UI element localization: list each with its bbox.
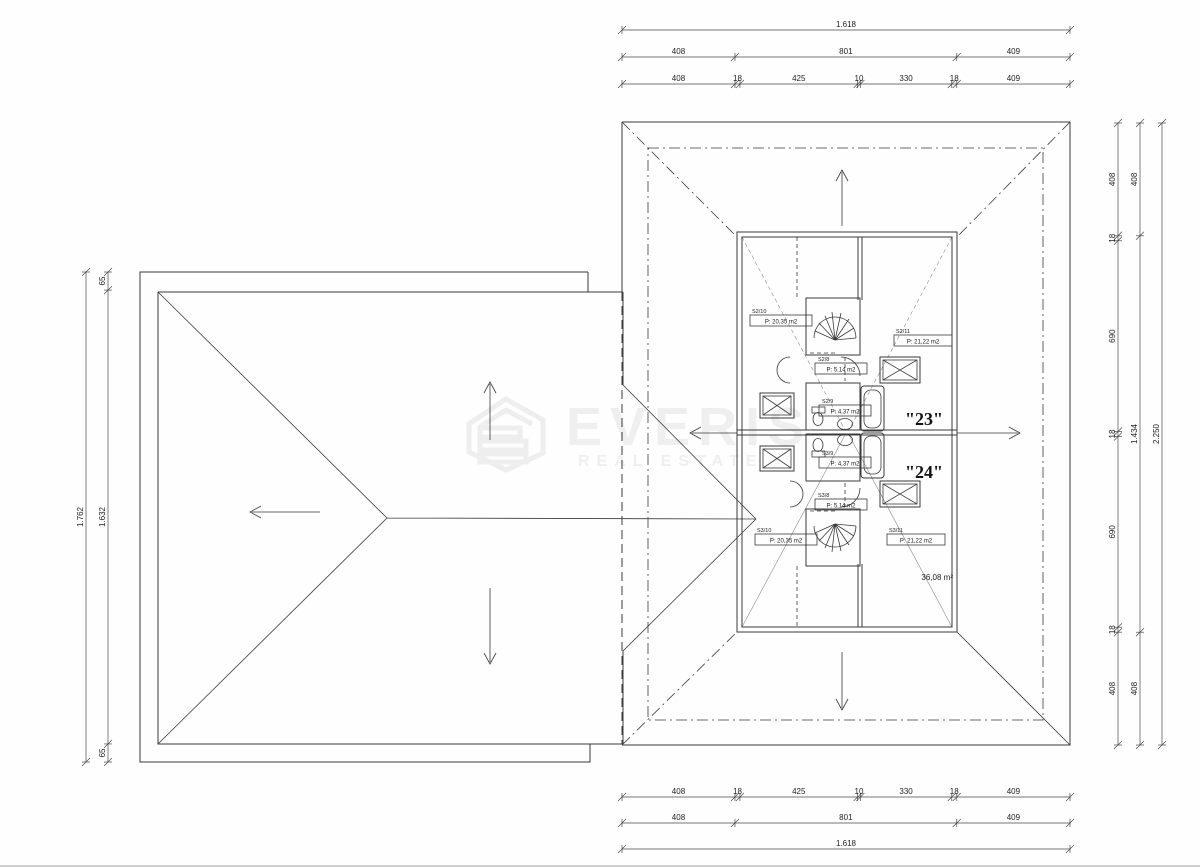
dim-label: 1.434 xyxy=(1130,423,1139,444)
dim-label: 690 xyxy=(1108,525,1117,539)
room-label-s2-11: S2/11 P: 21,22 m2 xyxy=(894,329,952,346)
arrow-up-icon xyxy=(836,170,848,226)
dim-label: 408 xyxy=(672,787,686,796)
dim-label: 1.618 xyxy=(836,839,857,848)
dim-label: 408 xyxy=(1108,172,1117,186)
toilet-icon xyxy=(812,407,825,413)
dim-label: 1.632 xyxy=(98,506,107,527)
left-building-footprint xyxy=(140,272,590,762)
watermark-brand: EVERIS xyxy=(566,397,812,457)
dim-label: 801 xyxy=(839,813,853,822)
room-area: P: 5,14 m2 xyxy=(826,504,856,510)
room-label-s3-10: S3/10 P: 20,35 m2 xyxy=(755,528,817,545)
dim-label: 330 xyxy=(899,787,913,796)
attic-area-note: 36,08 m² xyxy=(921,573,953,582)
room-label-s2-10: S2/10 P: 20,35 m2 xyxy=(750,309,812,326)
dim-label: 409 xyxy=(1007,813,1021,822)
dim-label: 690 xyxy=(1108,329,1117,343)
dim-label: 18 xyxy=(1108,625,1117,634)
toilet-icon xyxy=(813,413,823,426)
room-id: S3/10 xyxy=(757,528,771,534)
dim-label: 10 xyxy=(855,74,864,83)
room-label-s3-8: S3/8 P: 5,14 m2 xyxy=(815,493,867,510)
room-area: P: 5,14 m2 xyxy=(826,368,856,374)
room-divider-walls xyxy=(858,237,862,627)
dim-label: 65 xyxy=(98,748,107,757)
sink-icon xyxy=(838,435,853,446)
arrow-right-icon xyxy=(957,427,1020,439)
bathroom-23 xyxy=(806,383,860,430)
dim-label: 408 xyxy=(672,47,686,56)
arrow-down-icon xyxy=(484,588,496,664)
room-area: P: 20,35 m2 xyxy=(770,539,803,545)
arrow-down-icon xyxy=(836,652,848,710)
room-id: S3/8 xyxy=(818,493,829,499)
room-label-s3-9: S3/9 P: 4,37 m2 xyxy=(819,451,871,468)
dim-label: 801 xyxy=(839,47,853,56)
unit-23-label: "23" xyxy=(905,409,943,429)
dim-label: 18 xyxy=(1108,233,1117,242)
stair-room-24 xyxy=(806,509,860,566)
room-label-s2-9: S2/9 P: 4,37 m2 xyxy=(819,399,871,416)
dim-label: 408 xyxy=(1108,681,1117,695)
room-id: S3/9 xyxy=(822,451,833,457)
watermark-tagline: REAL ESTATE xyxy=(578,453,763,470)
dim-label: 330 xyxy=(899,74,913,83)
dim-label: 18 xyxy=(733,787,742,796)
roof-hip-solid xyxy=(957,632,1070,745)
dim-label: 408 xyxy=(672,74,686,83)
left-roof-hips xyxy=(158,292,756,744)
room-id: S2/9 xyxy=(822,399,833,405)
floor-plan-drawing: EVERIS REAL ESTATE xyxy=(0,0,1200,868)
room-area: P: 21,22 m2 xyxy=(900,539,933,545)
dim-label: 409 xyxy=(1007,74,1021,83)
scanned-floorplan-page: EVERIS REAL ESTATE xyxy=(0,0,1200,868)
arrow-left-icon xyxy=(250,506,320,518)
left-building-roof xyxy=(140,272,756,762)
everis-logo-icon xyxy=(469,399,543,470)
dim-label: 409 xyxy=(1007,787,1021,796)
room-area: P: 4,37 m2 xyxy=(830,462,860,468)
bathtub-23 xyxy=(861,386,884,431)
left-roof-slope-arrows xyxy=(250,382,496,664)
dim-label: 425 xyxy=(792,74,806,83)
dim-label: 2.250 xyxy=(1152,423,1161,444)
dim-label: 1.618 xyxy=(836,20,857,29)
dim-label: 408 xyxy=(1130,172,1139,186)
dim-label: 408 xyxy=(1130,681,1139,695)
toilet-icon xyxy=(813,439,823,452)
room-label-s3-11: S3/11 P: 21,22 m2 xyxy=(887,528,945,545)
sink-icon xyxy=(838,419,853,430)
dim-label: 10 xyxy=(855,787,864,796)
dim-label: 18 xyxy=(733,74,742,83)
room-area: P: 20,35 m2 xyxy=(765,320,798,326)
stair-room-23 xyxy=(806,298,860,355)
dim-label: 408 xyxy=(672,813,686,822)
dim-label: 18 xyxy=(950,787,959,796)
room-id: S3/11 xyxy=(889,528,903,534)
dim-label: 65 xyxy=(98,276,107,285)
dim-label: 18 xyxy=(1108,429,1117,438)
room-id: S2/11 xyxy=(896,329,910,335)
roof-window-24-right xyxy=(880,481,920,507)
room-id: S2/8 xyxy=(818,357,829,363)
dim-label: 18 xyxy=(950,74,959,83)
room-id: S2/10 xyxy=(752,309,766,315)
bathtub-24 xyxy=(861,433,884,478)
unit-24-label: "24" xyxy=(905,462,943,482)
dim-label: 1.762 xyxy=(76,506,85,527)
room-area: P: 21,22 m2 xyxy=(907,340,940,346)
room-area: P: 4,37 m2 xyxy=(830,410,860,416)
watermark: EVERIS REAL ESTATE xyxy=(469,397,812,470)
dim-label: 425 xyxy=(792,787,806,796)
dim-label: 409 xyxy=(1007,47,1021,56)
